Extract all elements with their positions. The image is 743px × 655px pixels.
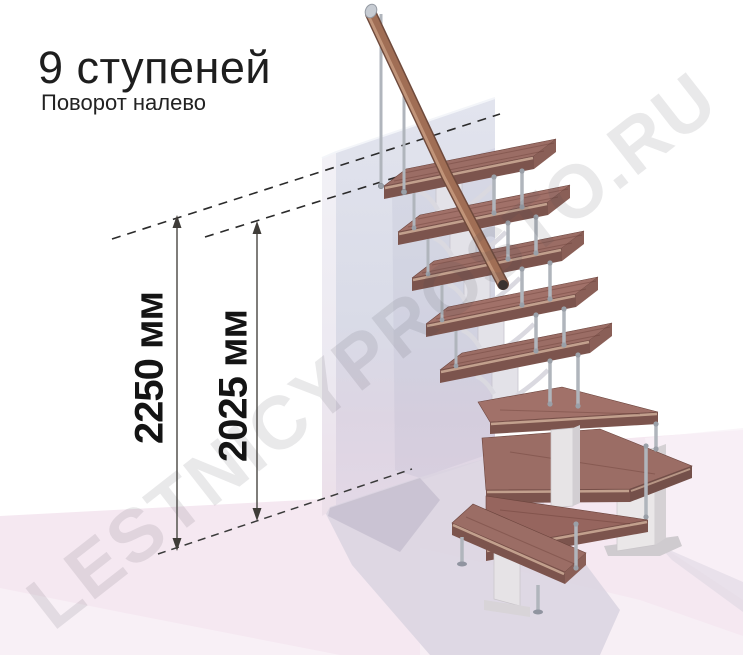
wall-side-face: [322, 152, 336, 516]
page-title: 9 ступеней: [38, 42, 271, 94]
stair-dimension-diagram: LESTNICYPROSTO.RU 9 ступеней Поворот нал…: [0, 0, 743, 655]
dimension-label-total-height: 2250 мм: [128, 292, 173, 444]
page-subtitle: Поворот налево: [41, 90, 206, 116]
support-column-mid: [551, 425, 580, 508]
dimension-label-upper-step-height: 2025 мм: [212, 310, 257, 462]
handrail-end-cap: [498, 280, 508, 290]
